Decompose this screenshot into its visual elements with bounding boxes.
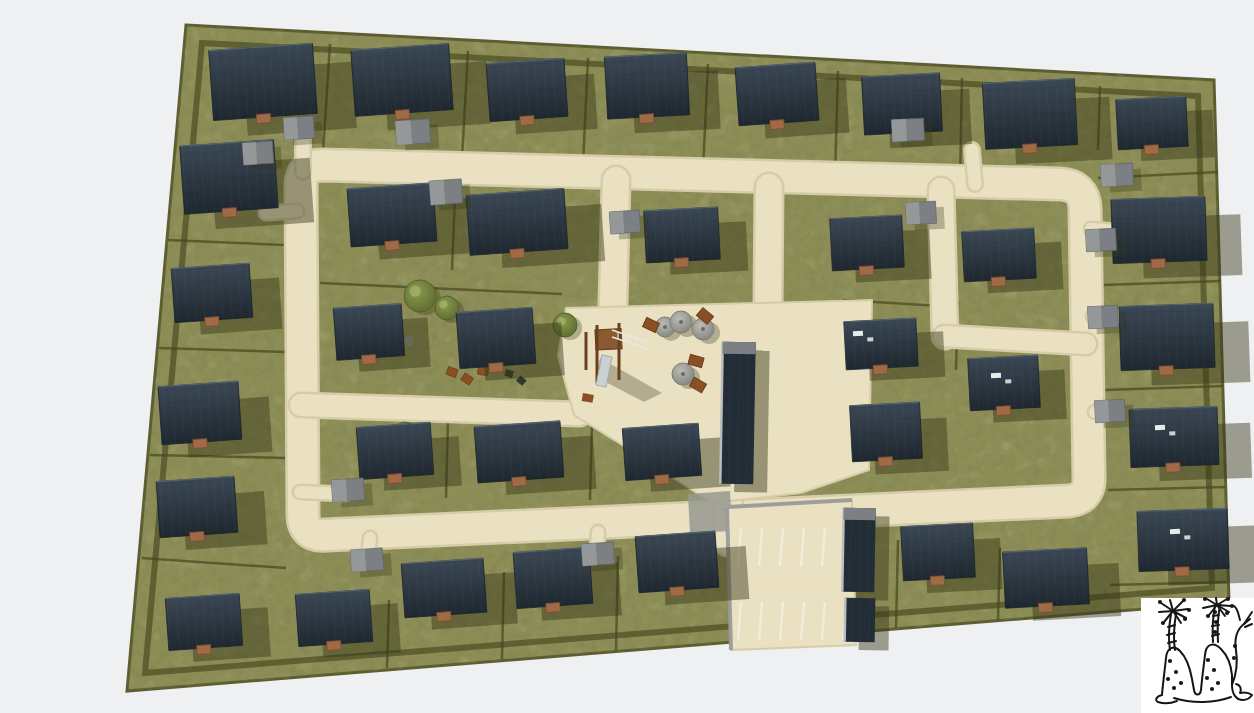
house-roof-texture [635,531,719,592]
house-roof-texture [830,215,905,271]
aerial-render-stage [0,0,1254,713]
garage-roof-light-side [1094,400,1109,423]
house-roof-texture [165,593,242,650]
porch [388,474,403,484]
logo-dot [1216,681,1220,685]
logo-dot [1232,656,1236,660]
porch [930,576,944,586]
porch [873,365,887,375]
porch [1159,366,1173,375]
garage-roof-light-side [609,211,624,234]
porch [512,477,527,487]
garage-roof-light-side [350,549,366,572]
logo-dot [1226,597,1230,601]
house-roof-texture [171,263,253,322]
porch [1023,144,1037,154]
logo-line [1159,611,1173,612]
house-roof-texture [209,43,318,120]
porch [193,439,208,449]
porch [996,406,1010,416]
house-roof-texture [1116,96,1189,150]
porch [655,475,670,485]
community-building [842,508,890,601]
house-roof-texture [982,79,1077,150]
house-roof-texture [622,423,701,480]
porch [1038,603,1052,613]
house-roof-texture [1137,508,1229,571]
porch [1175,567,1189,576]
house-roof-texture [1129,406,1219,467]
roof-vent-icon [1155,425,1165,431]
logo-line [1212,625,1219,626]
house-roof-texture [156,476,238,537]
porch [1144,145,1158,155]
logo-dot [1213,630,1217,634]
developer-logo-sketch [1141,597,1254,713]
logo-dot [1206,658,1210,662]
roof-vent-icon [853,331,863,337]
porch [520,116,535,126]
porch [670,587,685,597]
porch [362,355,377,365]
roof-vent-icon [991,373,1001,379]
logo-dot [1205,676,1209,680]
building-roof-texture [842,508,875,593]
green-tree-icon [404,280,436,312]
building-edge-highlight [845,598,846,642]
logo-dot [1230,604,1234,608]
porch [859,266,873,276]
porch [674,258,688,268]
porch [1151,259,1165,268]
logo-dot [1214,620,1218,624]
house-roof-texture [466,189,568,256]
house-roof-texture [456,307,536,368]
driveway [972,150,975,184]
house-roof-texture [1003,548,1090,608]
logo-dot [1206,614,1210,618]
house-roof-texture [968,355,1041,411]
porch [510,249,525,259]
roof-vent-icon [867,337,873,341]
tree-highlight [439,300,447,308]
garage-roof-light-side [891,119,907,142]
house-roof-texture [351,44,453,117]
roof-vent-icon [1184,535,1190,539]
logo-dot [1182,598,1186,602]
house-roof-texture [1119,303,1215,370]
garage-roof-light-side [242,142,257,165]
lane-road [944,336,1086,344]
house-roof-texture [644,207,721,263]
garage-roof-light-side [283,117,298,140]
porch [546,603,561,613]
logo-dot [1233,644,1237,648]
house-roof-texture [158,381,242,444]
building-gray-cap [723,342,756,355]
porch [222,208,237,218]
porch [770,120,785,130]
tree-trunk-dot [681,372,685,376]
logo-dot [1225,611,1229,615]
garage-roof-light-side [905,202,920,225]
porch [395,110,410,120]
roof-vent-icon [1170,529,1180,535]
logo-line [1213,615,1219,616]
tree-trunk-dot [679,320,683,324]
tree-trunk-dot [701,327,705,331]
house-roof-texture [347,183,437,247]
house-roof-texture [295,589,372,646]
garage-roof-light-side [1100,164,1116,187]
porch [878,457,892,467]
building-roof-texture [720,342,755,485]
porch [489,363,504,373]
porch [991,277,1005,287]
garage-roof-light-side [1085,229,1100,252]
logo-dot [1210,687,1214,691]
house-roof-texture [333,304,404,361]
logo-dot [1187,608,1191,612]
logo-dot [1168,659,1172,663]
house-roof-texture [850,402,923,462]
garage-roof-light-side [581,543,597,566]
tree-trunk-dot [663,325,667,329]
logo-dot [1203,597,1207,601]
logo-dot [1179,681,1183,685]
porch [1166,463,1180,472]
building-edge-highlight [842,508,843,592]
porch [190,532,205,542]
logo-dot [1166,677,1170,681]
porch [437,612,452,622]
lane-road [613,180,616,304]
logo-dot [1174,670,1178,674]
building-gray-cap [844,508,876,521]
garage-roof-light-side [331,479,347,502]
porch [256,114,271,124]
site-aerial-render [0,0,1254,713]
house-roof-texture [513,547,593,608]
house-roof-texture [735,62,819,125]
logo-dot [1213,610,1217,614]
house-roof-texture [962,228,1037,282]
green-tree-icon [435,296,459,320]
garage-roof-light-side [429,180,445,205]
logo-dot [1212,668,1216,672]
roof-vent-icon [1169,431,1175,435]
porch [197,645,212,655]
porch [639,114,653,124]
logo-dot [1161,621,1165,625]
roof-vent-icon [1005,379,1011,383]
house-roof-texture [844,318,918,370]
house-roof-texture [356,422,433,479]
porch [385,241,400,251]
porch [205,317,220,327]
house-roof-texture [1111,196,1207,263]
logo-dot [1158,600,1162,604]
house-roof-texture [604,53,689,119]
lane-road [768,187,769,304]
porch [327,641,342,651]
house-roof-texture [401,558,487,618]
logo-dot [1183,617,1187,621]
garage-roof-light-side [1087,306,1102,329]
logo-dot [1172,686,1176,690]
community-building [720,342,770,493]
tree-highlight [410,286,421,297]
house-roof-texture [486,58,568,121]
lane-road [301,405,580,414]
house-roof-texture [901,523,976,581]
building-roof-texture [845,598,876,643]
house-roof-texture [474,421,564,483]
garage-roof-light-side [395,120,412,145]
